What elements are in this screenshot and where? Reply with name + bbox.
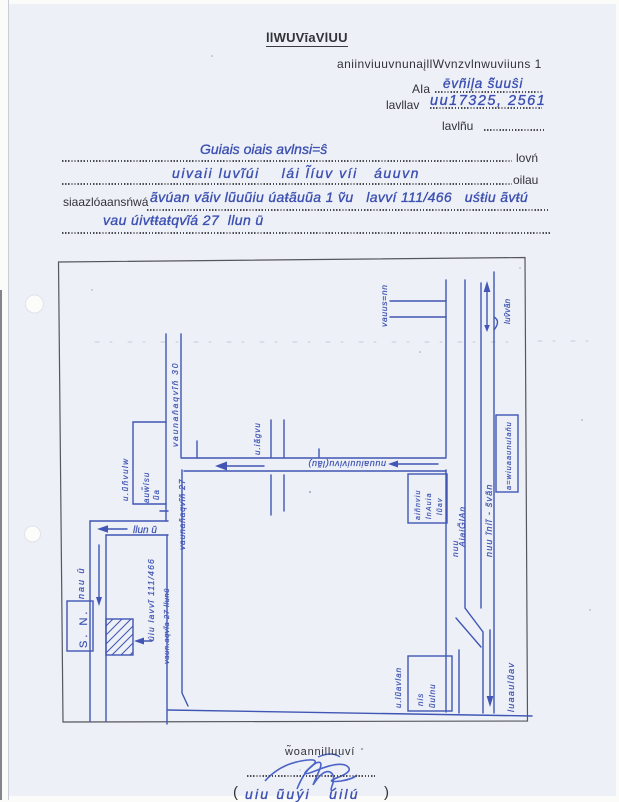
svg-text:vaunaňaqvĩň 27: vaunaňaqvĩň 27	[177, 479, 187, 550]
svg-text:nis: nis	[416, 693, 425, 706]
svg-text:vauus=nn: vauus=nn	[379, 284, 389, 327]
svg-text:llun ū: llun ū	[133, 525, 157, 536]
svg-text:S. N.: S. N.	[78, 609, 90, 648]
svg-text:ũulnu: ũulnu	[428, 683, 437, 708]
svg-text:úiu lavvĩ 111/466: úiu lavvĩ 111/466	[146, 558, 156, 641]
svg-text:AiaiG̃lAn: AiaiG̃lAn	[456, 506, 467, 548]
svg-text:luaaulũav: luaaulũav	[506, 662, 516, 712]
svg-text:u.iãgvu: u.iãgvu	[253, 422, 262, 455]
svg-text:aiñnviu: aiñnviu	[415, 489, 422, 520]
svg-text:vaun.aqvĩa 27 llunū: vaun.aqvĩa 27 llunū	[162, 588, 171, 664]
svg-text:u.ũñvulw: u.ũñvulw	[121, 457, 130, 501]
svg-text:luṽvãn: luṽvãn	[503, 298, 512, 324]
svg-text:auw̃ísu: auw̃ísu	[142, 472, 151, 503]
svg-text:lũav: lũav	[437, 497, 444, 515]
svg-text:nuu ĩniĩ - s̃vãn: nuu ĩniĩ - s̃vãn	[484, 483, 494, 557]
svg-text:u.lũavlan: u.lũavlan	[394, 667, 403, 708]
svg-text:nau ū: nau ū	[76, 566, 86, 599]
svg-text:ũa: ũa	[152, 489, 161, 500]
svg-text:a=wiuaaunulaňu: a=wiuaaunulaňu	[504, 421, 513, 490]
svg-text:vaunaňaqvĩň 30: vaunaňaqvĩň 30	[170, 362, 180, 447]
svg-text:lnAuia: lnAuia	[426, 492, 433, 519]
svg-text:nuuaiuuivivu(lãu): nuuaiuuivivu(lãu)	[308, 459, 386, 469]
